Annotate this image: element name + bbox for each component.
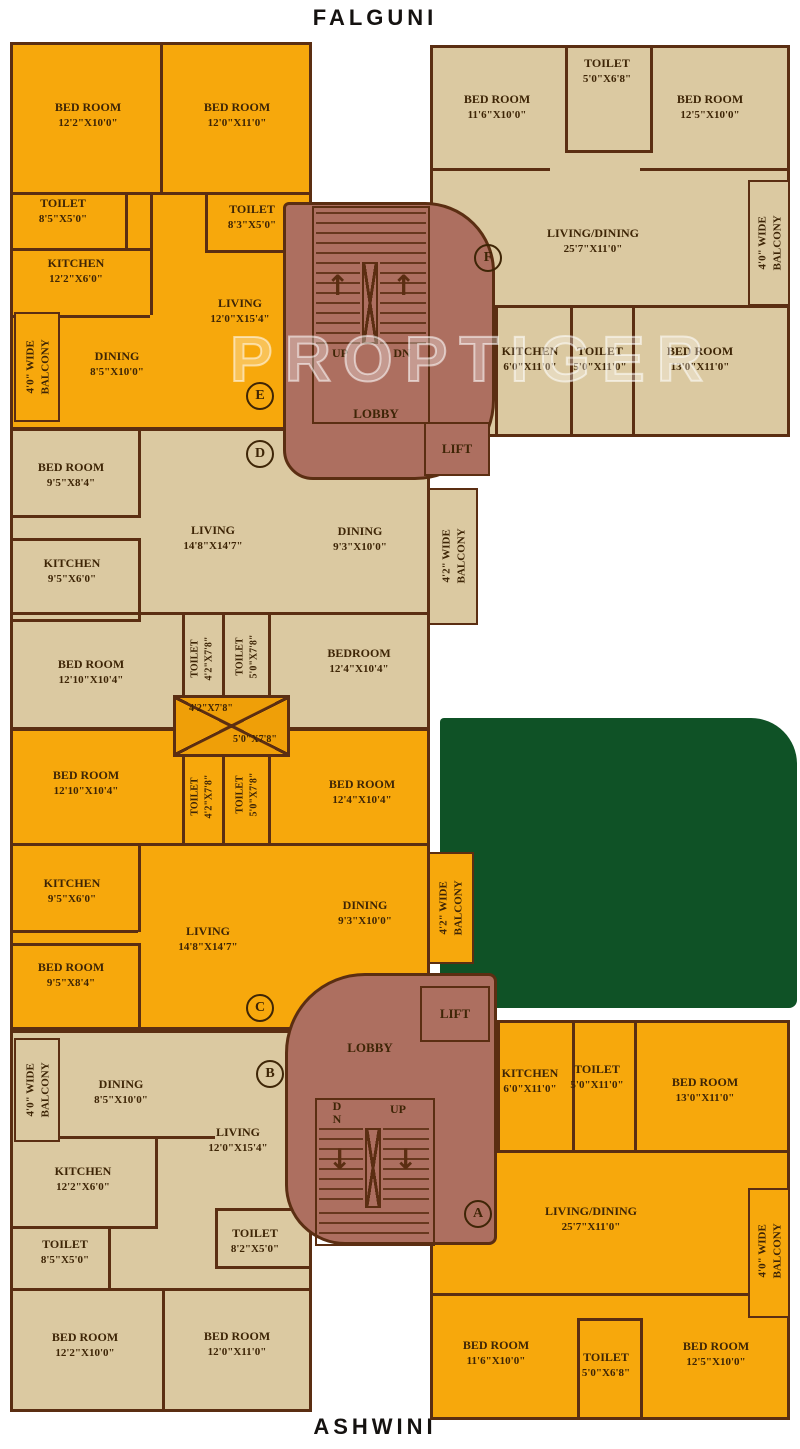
wall — [150, 192, 153, 315]
room-label-bedroom: BED ROOM12'2"X10'0" — [28, 100, 148, 130]
wall — [10, 1288, 312, 1291]
room-label-bedroom: BED ROOM12'5"X10'0" — [656, 1339, 776, 1369]
wall — [10, 192, 312, 195]
wall — [640, 168, 790, 171]
wall — [162, 1288, 165, 1412]
room-label-toilet: TOILET4'2"X7'8" — [183, 620, 221, 696]
floor-plan: FALGUNI ASHWINI BED ROOM12'2"X10'0" BED … — [0, 0, 800, 1449]
wall — [160, 42, 163, 192]
room-label-bedroom: BED ROOM12'10"X10'4" — [26, 657, 156, 687]
stair-treads — [316, 212, 426, 258]
wall — [138, 428, 141, 518]
room-label-dining: DINING9'3"X10'0" — [305, 898, 425, 928]
building-title-top: FALGUNI — [275, 5, 475, 31]
wall — [268, 757, 271, 845]
wall — [10, 619, 138, 622]
room-label-bedroom: BED ROOM12'10"X10'4" — [21, 768, 151, 798]
wall — [155, 1136, 158, 1228]
room-label-dining: DINING9'3"X10'0" — [300, 524, 420, 554]
wall — [10, 612, 430, 615]
room-label-dining: DINING8'5"X10'0" — [62, 349, 172, 379]
room-label-toilet: TOILET5'0"X11'0" — [547, 1062, 647, 1092]
lift-top: LIFT — [424, 422, 490, 476]
shaft-dim: 4'2"X7'8" — [178, 702, 244, 715]
room-label-toilet: TOILET8'5"X5'0" — [18, 196, 108, 226]
wall — [10, 930, 138, 933]
up-arrow-icon: ↑ — [392, 272, 415, 300]
room-label-toilet: TOILET8'5"X5'0" — [20, 1237, 110, 1267]
room-label-dining: DINING8'5"X10'0" — [66, 1077, 176, 1107]
wall — [138, 943, 141, 1030]
room-label-kitchen: KITCHEN12'2"X6'0" — [28, 1164, 138, 1194]
wall — [138, 538, 141, 622]
wall — [222, 757, 225, 845]
room-label-living: LIVING14'8"X14'7" — [153, 523, 273, 553]
down-arrow-icon: ↓ — [394, 1146, 417, 1174]
room-label-kitchen: KITCHEN9'5"X6'0" — [17, 556, 127, 586]
room-label-toilet: TOILET5'0"X6'8" — [557, 56, 657, 86]
up-arrow-icon: ↑ — [326, 272, 349, 300]
stairs-down-label: DN — [330, 1100, 344, 1125]
room-label-kitchen: KITCHEN12'2"X6'0" — [21, 256, 131, 286]
lift-bottom: LIFT — [420, 986, 490, 1042]
unit-a-marker: A — [464, 1200, 492, 1228]
room-label-living: LIVING12'0"X15'4" — [178, 1125, 298, 1155]
lobby-label: LOBBY — [325, 1040, 415, 1057]
wall — [222, 612, 225, 698]
room-label-balcony: 4'2" WIDEBALCONY — [432, 490, 476, 622]
wall — [125, 192, 128, 248]
lift-label: LIFT — [442, 441, 472, 457]
room-label-bedroom: BED ROOM12'0"X11'0" — [177, 100, 297, 130]
wall — [268, 612, 271, 698]
room-label-toilet: TOILET5'0"X6'8" — [556, 1350, 656, 1380]
wall — [10, 843, 430, 846]
wall — [138, 846, 141, 932]
down-arrow-icon: ↓ — [328, 1146, 351, 1174]
room-label-living-dining: LIVING/DINING25'7"X11'0" — [513, 226, 673, 256]
wall — [565, 150, 653, 153]
room-label-toilet: TOILET5'0"X7'8" — [228, 756, 266, 832]
unit-d-marker: D — [246, 440, 274, 468]
wall — [215, 1266, 312, 1269]
shaft-dim: 5'0"X7'8" — [222, 733, 288, 746]
room-label-balcony: 4'0" WIDEBALCONY — [16, 312, 60, 422]
room-label-bedroom: BED ROOM11'6"X10'0" — [436, 1338, 556, 1368]
room-label-bedroom: BEDROOM12'4"X10'4" — [294, 646, 424, 676]
unit-b-marker: B — [256, 1060, 284, 1088]
wall — [10, 943, 138, 946]
wall — [10, 538, 138, 541]
wall — [577, 1318, 643, 1321]
unit-c-marker: C — [246, 994, 274, 1022]
room-label-balcony: 4'0" WIDEBALCONY — [750, 182, 790, 304]
wall — [10, 515, 138, 518]
room-label-bedroom: BED ROOM9'5"X8'4" — [16, 460, 126, 490]
room-label-toilet: TOILET4'2"X7'8" — [183, 758, 221, 834]
room-label-bedroom: BED ROOM12'4"X10'4" — [297, 777, 427, 807]
room-label-bedroom: BED ROOM12'5"X10'0" — [650, 92, 770, 122]
stair-divider — [365, 1128, 381, 1208]
stairs-up-label: UP — [376, 1102, 420, 1118]
room-label-living-dining: LIVING/DINING25'7"X11'0" — [511, 1204, 671, 1234]
unit-f-marker: F — [474, 244, 502, 272]
room-label-bedroom: BED ROOM11'6"X10'0" — [437, 92, 557, 122]
stair-treads — [319, 1212, 429, 1242]
room-label-bedroom: BED ROOM13'0"X11'0" — [645, 1075, 765, 1105]
room-label-toilet: TOILET5'0"X7'8" — [228, 618, 266, 694]
lobby-label: LOBBY — [331, 406, 421, 423]
wall — [10, 248, 150, 251]
lawn-area — [440, 718, 797, 1008]
lift-label: LIFT — [440, 1006, 470, 1022]
wall — [430, 168, 550, 171]
wall — [430, 1293, 790, 1296]
room-label-balcony: 4'2" WIDEBALCONY — [430, 855, 472, 961]
wall — [10, 1226, 158, 1229]
room-label-balcony: 4'0" WIDEBALCONY — [16, 1040, 60, 1140]
wall — [495, 305, 790, 308]
room-label-bedroom: BED ROOM12'0"X11'0" — [177, 1329, 297, 1359]
room-label-living: LIVING14'8"X14'7" — [148, 924, 268, 954]
watermark: PROPTIGER — [230, 322, 715, 396]
room-label-kitchen: KITCHEN9'5"X6'0" — [17, 876, 127, 906]
room-label-toilet: TOILET8'2"X5'0" — [210, 1226, 300, 1256]
room-label-bedroom: BED ROOM9'5"X8'4" — [16, 960, 126, 990]
room-label-balcony: 4'0" WIDEBALCONY — [750, 1188, 790, 1314]
room-label-bedroom: BED ROOM12'2"X10'0" — [25, 1330, 145, 1360]
